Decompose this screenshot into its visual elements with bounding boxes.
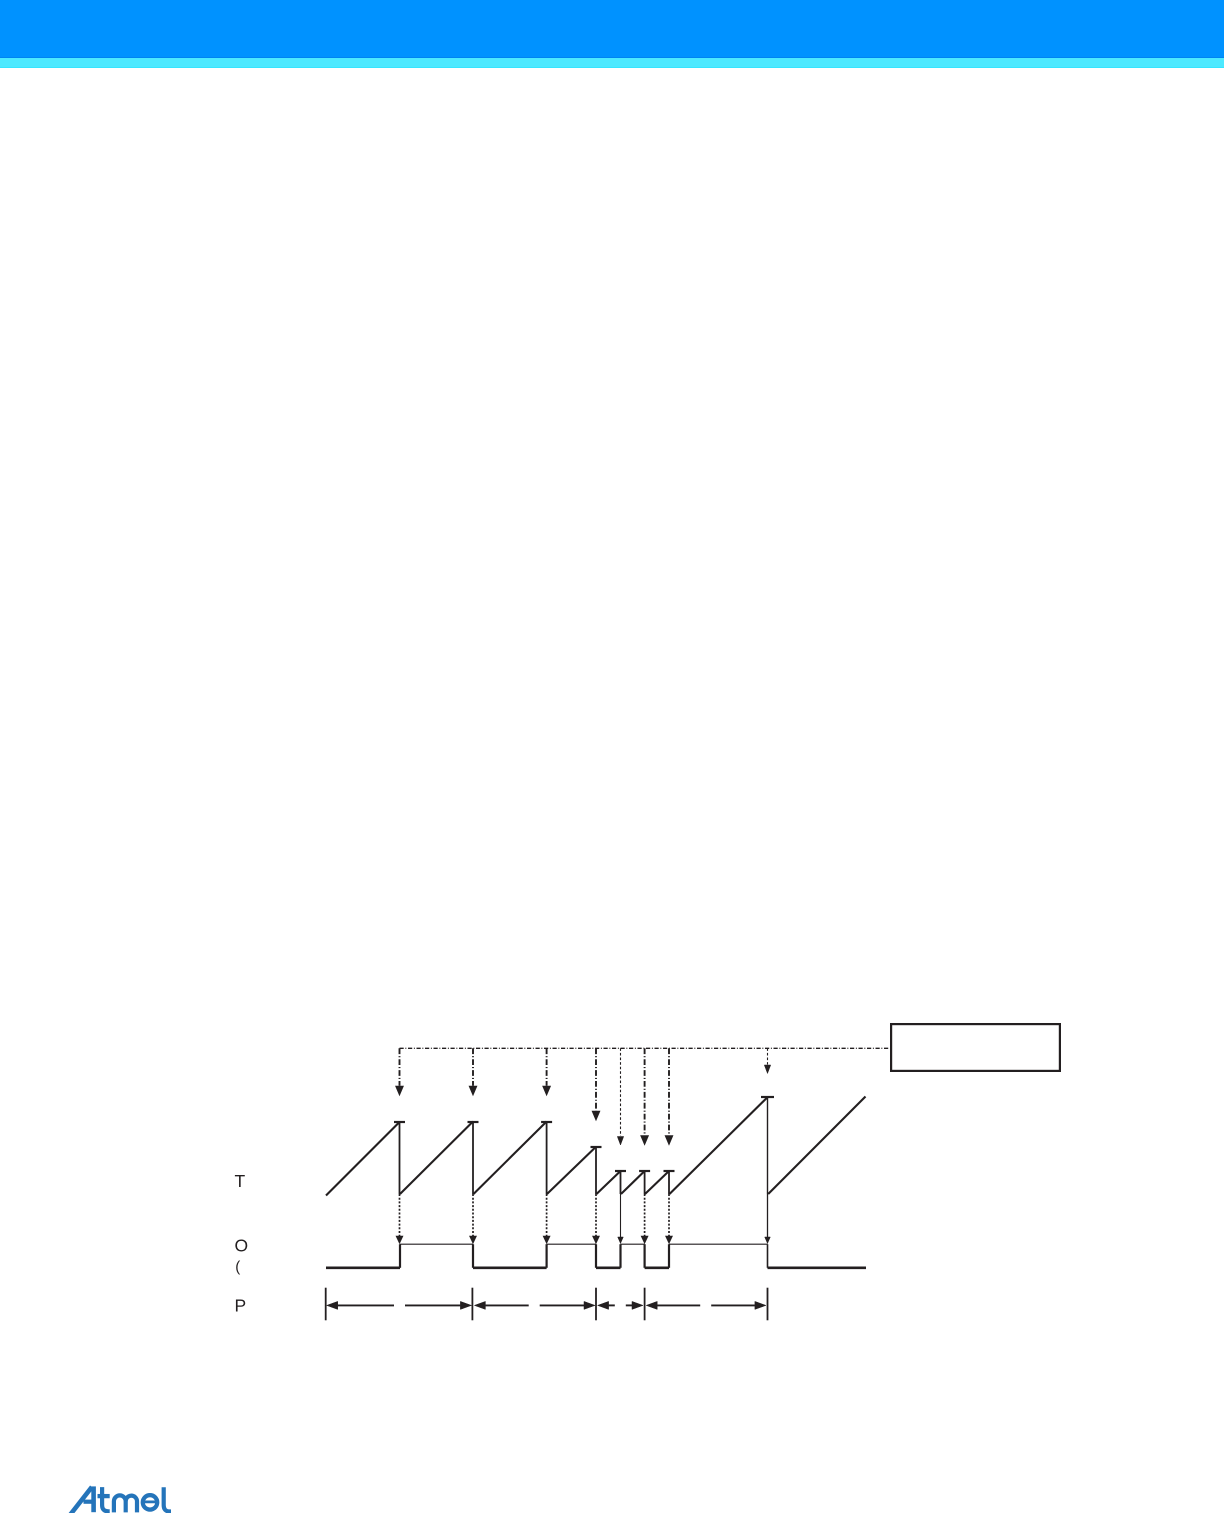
svg-text:P: P [235, 1296, 247, 1316]
svg-text:O: O [235, 1235, 249, 1255]
svg-text:T: T [235, 1171, 246, 1191]
svg-text:(: ( [235, 1259, 240, 1276]
